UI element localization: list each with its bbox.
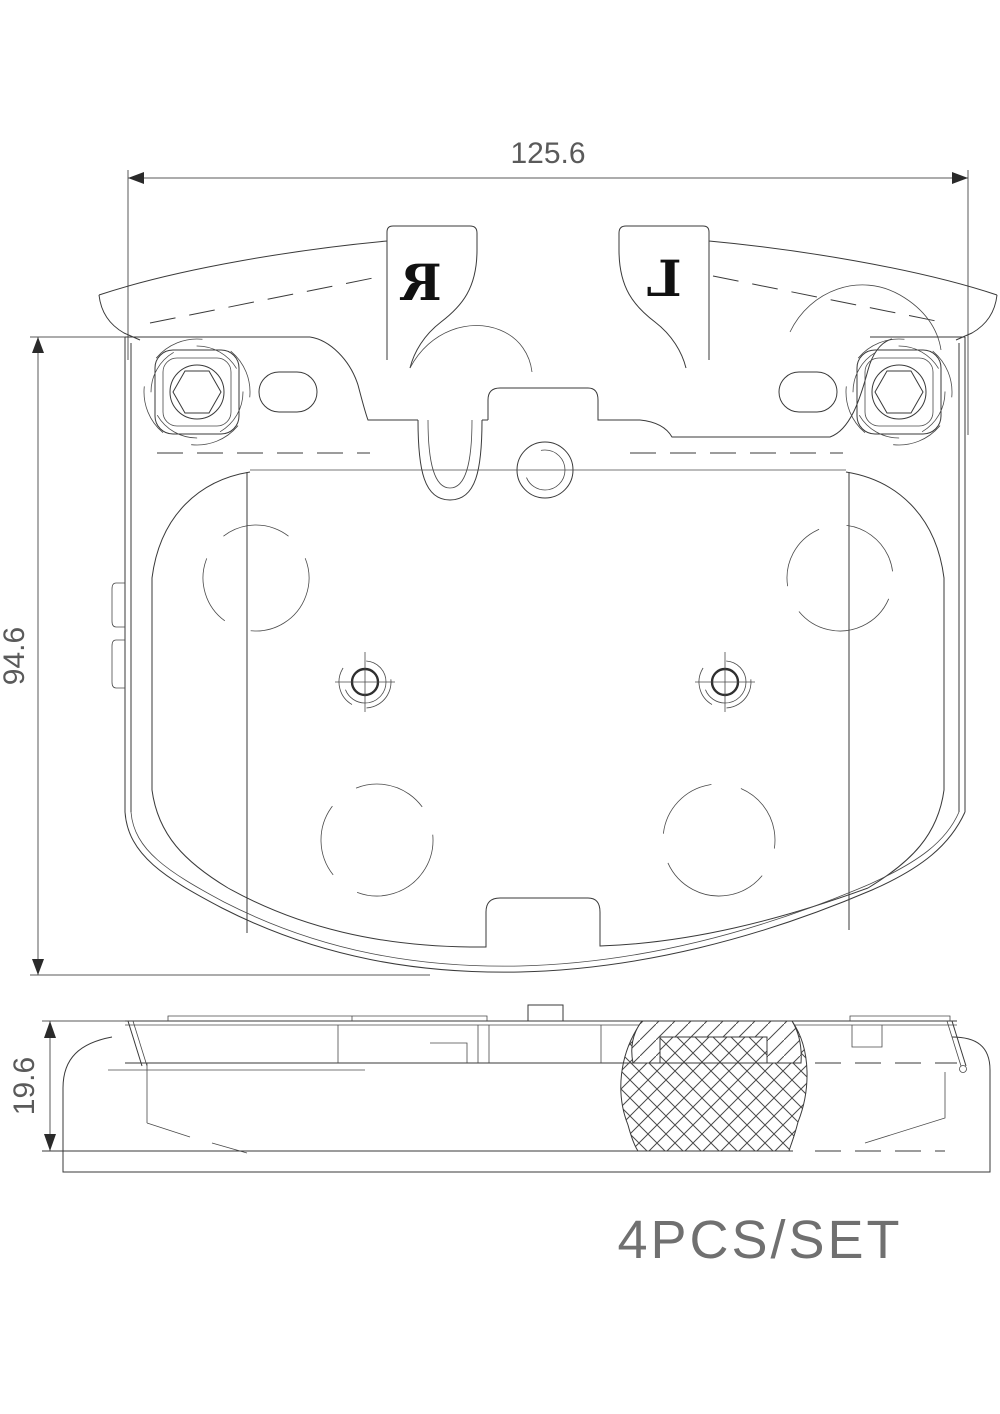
right-bolt bbox=[824, 317, 973, 466]
set-caption: 4PCS/SET bbox=[617, 1210, 902, 1270]
brake-pad-technical-drawing: 125.6 94.6 19.6 bbox=[0, 0, 1000, 1414]
left-pad-letter: L bbox=[646, 249, 681, 308]
front-view: R L bbox=[99, 226, 997, 972]
dimension-thickness: 19.6 bbox=[8, 1021, 128, 1151]
side-view bbox=[42, 1005, 990, 1172]
dimension-thickness-label: 19.6 bbox=[8, 1057, 41, 1115]
drawing-canvas: 125.6 94.6 19.6 bbox=[0, 0, 1000, 1414]
section-cut bbox=[621, 1021, 807, 1151]
dimension-width: 125.6 bbox=[128, 137, 968, 435]
dimension-height-label: 94.6 bbox=[0, 627, 31, 685]
left-bolt bbox=[122, 317, 271, 466]
right-oval-hole bbox=[779, 372, 837, 412]
dimension-width-label: 125.6 bbox=[510, 137, 585, 170]
left-rivet bbox=[329, 646, 400, 717]
left-oval-hole bbox=[259, 372, 317, 412]
right-rivet bbox=[689, 646, 760, 717]
right-pad-letter: R bbox=[400, 253, 442, 312]
